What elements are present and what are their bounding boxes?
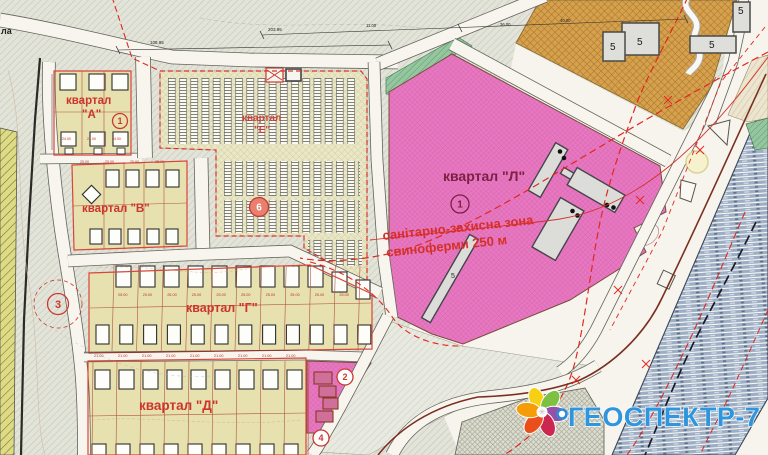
svg-text:203.95: 203.95 (268, 27, 282, 32)
svg-text:6: 6 (256, 203, 262, 214)
svg-text:25.00: 25.00 (216, 293, 226, 297)
svg-text:108.95: 108.95 (150, 40, 164, 45)
svg-text:21.00: 21.00 (286, 354, 296, 358)
svg-text:25.00: 25.00 (290, 293, 300, 297)
svg-text:21.00: 21.00 (238, 354, 248, 358)
svg-text:25.00: 25.00 (80, 160, 89, 164)
svg-text:21.00: 21.00 (166, 354, 176, 358)
svg-text:квартал "В": квартал "В" (82, 203, 150, 215)
svg-text:25.00: 25.00 (339, 293, 349, 297)
svg-text:25.00: 25.00 (266, 293, 276, 297)
svg-text:25.00: 25.00 (105, 160, 114, 164)
svg-text:5: 5 (637, 37, 643, 48)
svg-text:1: 1 (457, 200, 463, 211)
svg-text:21.00: 21.00 (94, 354, 104, 358)
svg-text:40.00: 40.00 (560, 18, 571, 23)
svg-text:24.00: 24.00 (62, 137, 71, 141)
svg-text:21.00: 21.00 (118, 354, 128, 358)
svg-text:квартал "Л": квартал "Л" (443, 168, 525, 184)
svg-text:квартал "Г": квартал "Г" (186, 301, 258, 315)
svg-text:4: 4 (318, 433, 323, 443)
svg-text:25.00: 25.00 (118, 293, 128, 297)
svg-text:21.00: 21.00 (142, 354, 152, 358)
svg-text:25.00: 25.00 (192, 293, 202, 297)
svg-text:квартал: квартал (242, 113, 281, 124)
svg-text:5: 5 (738, 6, 744, 17)
svg-text:"Е": "Е" (254, 125, 270, 136)
svg-text:11.00: 11.00 (366, 23, 377, 28)
svg-text:24.00: 24.00 (112, 137, 121, 141)
svg-text:36.00: 36.00 (500, 22, 511, 27)
svg-text:25.00: 25.00 (315, 293, 325, 297)
svg-text:21.00: 21.00 (262, 354, 272, 358)
svg-text:21.00: 21.00 (190, 354, 200, 358)
svg-text:25.00: 25.00 (155, 160, 164, 164)
svg-text:5: 5 (451, 273, 455, 280)
svg-text:3: 3 (55, 299, 61, 311)
svg-text:25.00: 25.00 (130, 160, 139, 164)
svg-text:21.00: 21.00 (214, 354, 224, 358)
svg-text:25.00: 25.00 (143, 293, 153, 297)
svg-text:5: 5 (709, 40, 715, 51)
svg-text:5: 5 (610, 42, 616, 53)
svg-text:25.00: 25.00 (241, 293, 251, 297)
svg-text:квартал "Д": квартал "Д" (139, 398, 218, 413)
svg-text:"А": "А" (82, 109, 101, 121)
svg-text:✳: ✳ (538, 407, 546, 417)
svg-text:2: 2 (342, 372, 347, 382)
svg-text:25.00: 25.00 (167, 293, 177, 297)
svg-text:1: 1 (117, 116, 122, 126)
svg-text:ла: ла (1, 26, 13, 36)
svg-text:ГЕОСПЕКТР-7: ГЕОСПЕКТР-7 (568, 402, 760, 432)
svg-text:24.00: 24.00 (87, 137, 96, 141)
svg-text:квартал: квартал (66, 95, 111, 107)
